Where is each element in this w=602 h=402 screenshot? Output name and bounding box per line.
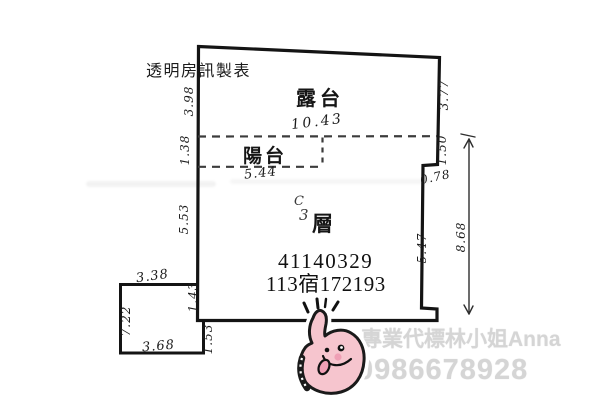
dim-annex-right: 1.53	[201, 324, 215, 355]
balcony-label: 陽台	[243, 141, 287, 168]
sticker-hand	[300, 310, 364, 393]
sticker-smile	[323, 356, 351, 365]
dim-annex-top: 3.38	[135, 267, 170, 286]
sticker-cuff	[300, 358, 307, 388]
dim-left-balcony: 1.38	[178, 135, 192, 166]
dim-right-lower: 5.47	[415, 233, 429, 264]
maker-label: 透明房訊製表	[146, 57, 251, 81]
dim-right-notch-depth: 0.78	[419, 167, 452, 187]
watermark-agent-name: 專業代標林小姐Anna	[361, 323, 561, 353]
dim-left-middle: 5.53	[177, 204, 191, 235]
dim-right-overall: 8.68	[454, 222, 468, 253]
dim-annex-bottom: 3.68	[141, 338, 175, 356]
sticker-motion-lines	[304, 299, 338, 312]
floorplan-scan-page: 透明房訊製表 露台 陽台 C 3 層 41140329 113宿172193 1…	[0, 0, 602, 402]
sticker-right-eye-highlight	[340, 346, 343, 349]
floor-number: 3	[299, 206, 309, 224]
dim-right-notch: 1.50	[435, 135, 449, 166]
dim-left-upper: 3.98	[182, 86, 196, 117]
watermark-phone-number: 0986678928	[357, 354, 528, 387]
dim-annex-left: 7.22	[119, 306, 133, 337]
sticker-cuff-stitches	[300, 358, 307, 388]
floor-word-label: 層	[312, 208, 333, 238]
dim-left-lower: 1.43	[186, 282, 200, 313]
sticker-left-eye	[325, 348, 330, 353]
dim-terrace-width: 10.43	[290, 111, 344, 133]
terrace-label: 露台	[296, 82, 344, 111]
sticker-blush	[334, 353, 341, 360]
dim-right-upper: 3.77	[437, 80, 451, 111]
sticker-tongue	[316, 358, 331, 376]
sticker-halo	[300, 310, 364, 393]
scan-artifact-band	[86, 181, 216, 187]
sticker-right-eye	[338, 345, 345, 352]
case-number-line2: 113宿172193	[266, 268, 386, 298]
